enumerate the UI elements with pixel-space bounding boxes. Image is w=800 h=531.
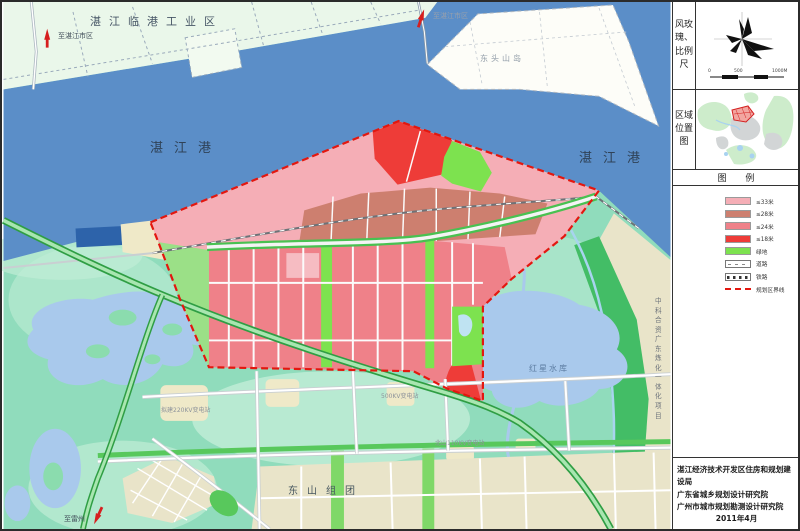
- legend-item: ≤24米: [725, 222, 799, 230]
- planning-map-sheet: 湛江临港工业区 至湛江市区 至湛江市区 东头山岛 湛江港 湛江港 红星水库 中科…: [0, 0, 800, 531]
- info-panel: 风玫瑰、比例尺 0 500: [672, 2, 799, 529]
- harbor-basin: [76, 226, 123, 247]
- legend-item: 铁路: [725, 273, 799, 281]
- legend-title: 图 例: [673, 170, 799, 186]
- svg-text:500: 500: [734, 68, 743, 74]
- svg-text:1000M: 1000M: [772, 68, 787, 74]
- region-map: [696, 90, 799, 168]
- legend-railway-symbol: [725, 273, 751, 281]
- windrose-scale-section: 风玫瑰、比例尺 0 500: [673, 2, 799, 90]
- legend-item: 绿地: [725, 247, 799, 255]
- legend-item: ≤33米: [725, 197, 799, 205]
- legend-item: ≤18米: [725, 235, 799, 243]
- scale-bar: 0 500 1000M: [708, 68, 787, 79]
- legend-swatch-greenspace: [725, 247, 751, 255]
- attribution-date: 2011年4月: [677, 513, 796, 525]
- legend-item: 道路: [725, 260, 799, 268]
- wind-rose: [726, 17, 774, 59]
- region-location-section: 区域位置图: [673, 90, 799, 170]
- attribution-line: 湛江经济技术开发区住房和规划建设局: [677, 464, 796, 488]
- windrose-section-label: 风玫瑰、比例尺: [673, 2, 696, 89]
- region-section-label: 区域位置图: [673, 90, 696, 169]
- map-canvas: 湛江临港工业区 至湛江市区 至湛江市区 东头山岛 湛江港 湛江港 红星水库 中科…: [2, 2, 672, 529]
- legend-boundary-symbol: [725, 288, 751, 290]
- legend: ≤33米 ≤28米 ≤24米 ≤18米 绿地 道路 铁路 规划区界线: [673, 186, 799, 298]
- legend-swatch-le28m: [725, 210, 751, 218]
- legend-swatch-le18m: [725, 235, 751, 243]
- windrose-scale-graphic: 0 500 1000M: [696, 2, 799, 88]
- attribution-line: 广州市城市规划勘测设计研究院: [677, 501, 796, 513]
- attribution-line: 广东省城乡规划设计研究院: [677, 489, 796, 501]
- legend-swatch-le33m: [725, 197, 751, 205]
- legend-item: ≤28米: [725, 210, 799, 218]
- legend-road-symbol: [725, 260, 751, 268]
- svg-text:0: 0: [708, 68, 711, 74]
- legend-item: 规划区界线: [725, 285, 799, 293]
- legend-swatch-le24m: [725, 222, 751, 230]
- attribution-block: 湛江经济技术开发区住房和规划建设局 广东省城乡规划设计研究院 广州市城市规划勘测…: [673, 457, 799, 529]
- map-drawing: [2, 2, 672, 529]
